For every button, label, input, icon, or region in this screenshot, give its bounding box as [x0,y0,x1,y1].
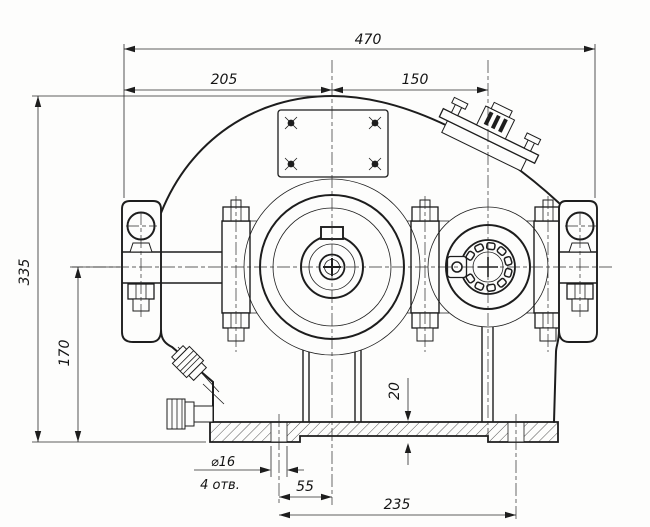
dim-overall-width: 470 [124,32,595,52]
dim-label-335: 335 [17,259,33,286]
dim-right-span: 150 [332,72,488,93]
right-mounting-lug [559,201,597,342]
dim-axis-height: 170 [57,267,81,442]
support-ribs [303,327,493,422]
base-plate [210,422,558,442]
dim-overall-height: 335 [17,96,41,442]
dim-label-hole-qty: 4 отв. [200,478,240,493]
inspection-cover [278,110,388,177]
dim-label-235: 235 [384,497,411,513]
dim-left-span: 205 [124,72,332,93]
dim-base-holes: ⌀16 4 отв. [194,455,304,493]
dim-label-170: 170 [57,340,73,367]
gearbox-front-view-drawing: 470 205 150 335 170 20 [0,0,650,527]
housing-right-lower-contour [554,330,559,422]
dim-label-20: 20 [387,382,403,400]
dim-label-55: 55 [296,479,314,495]
breather-assembly [434,84,551,175]
dim-label-hole-dia: ⌀16 [211,455,235,470]
split-flange-band [122,252,597,283]
dim-label-470: 470 [355,32,382,48]
dim-hole-offset: 55 [279,479,332,500]
base-plate-section [210,422,558,442]
dim-hole-pitch: 235 [279,497,516,518]
technical-drawing-page: 470 205 150 335 170 20 [0,0,650,527]
drain-plug [167,399,213,429]
dim-label-150: 150 [402,72,429,88]
dim-label-205: 205 [211,72,238,88]
left-mounting-lug [122,201,161,342]
